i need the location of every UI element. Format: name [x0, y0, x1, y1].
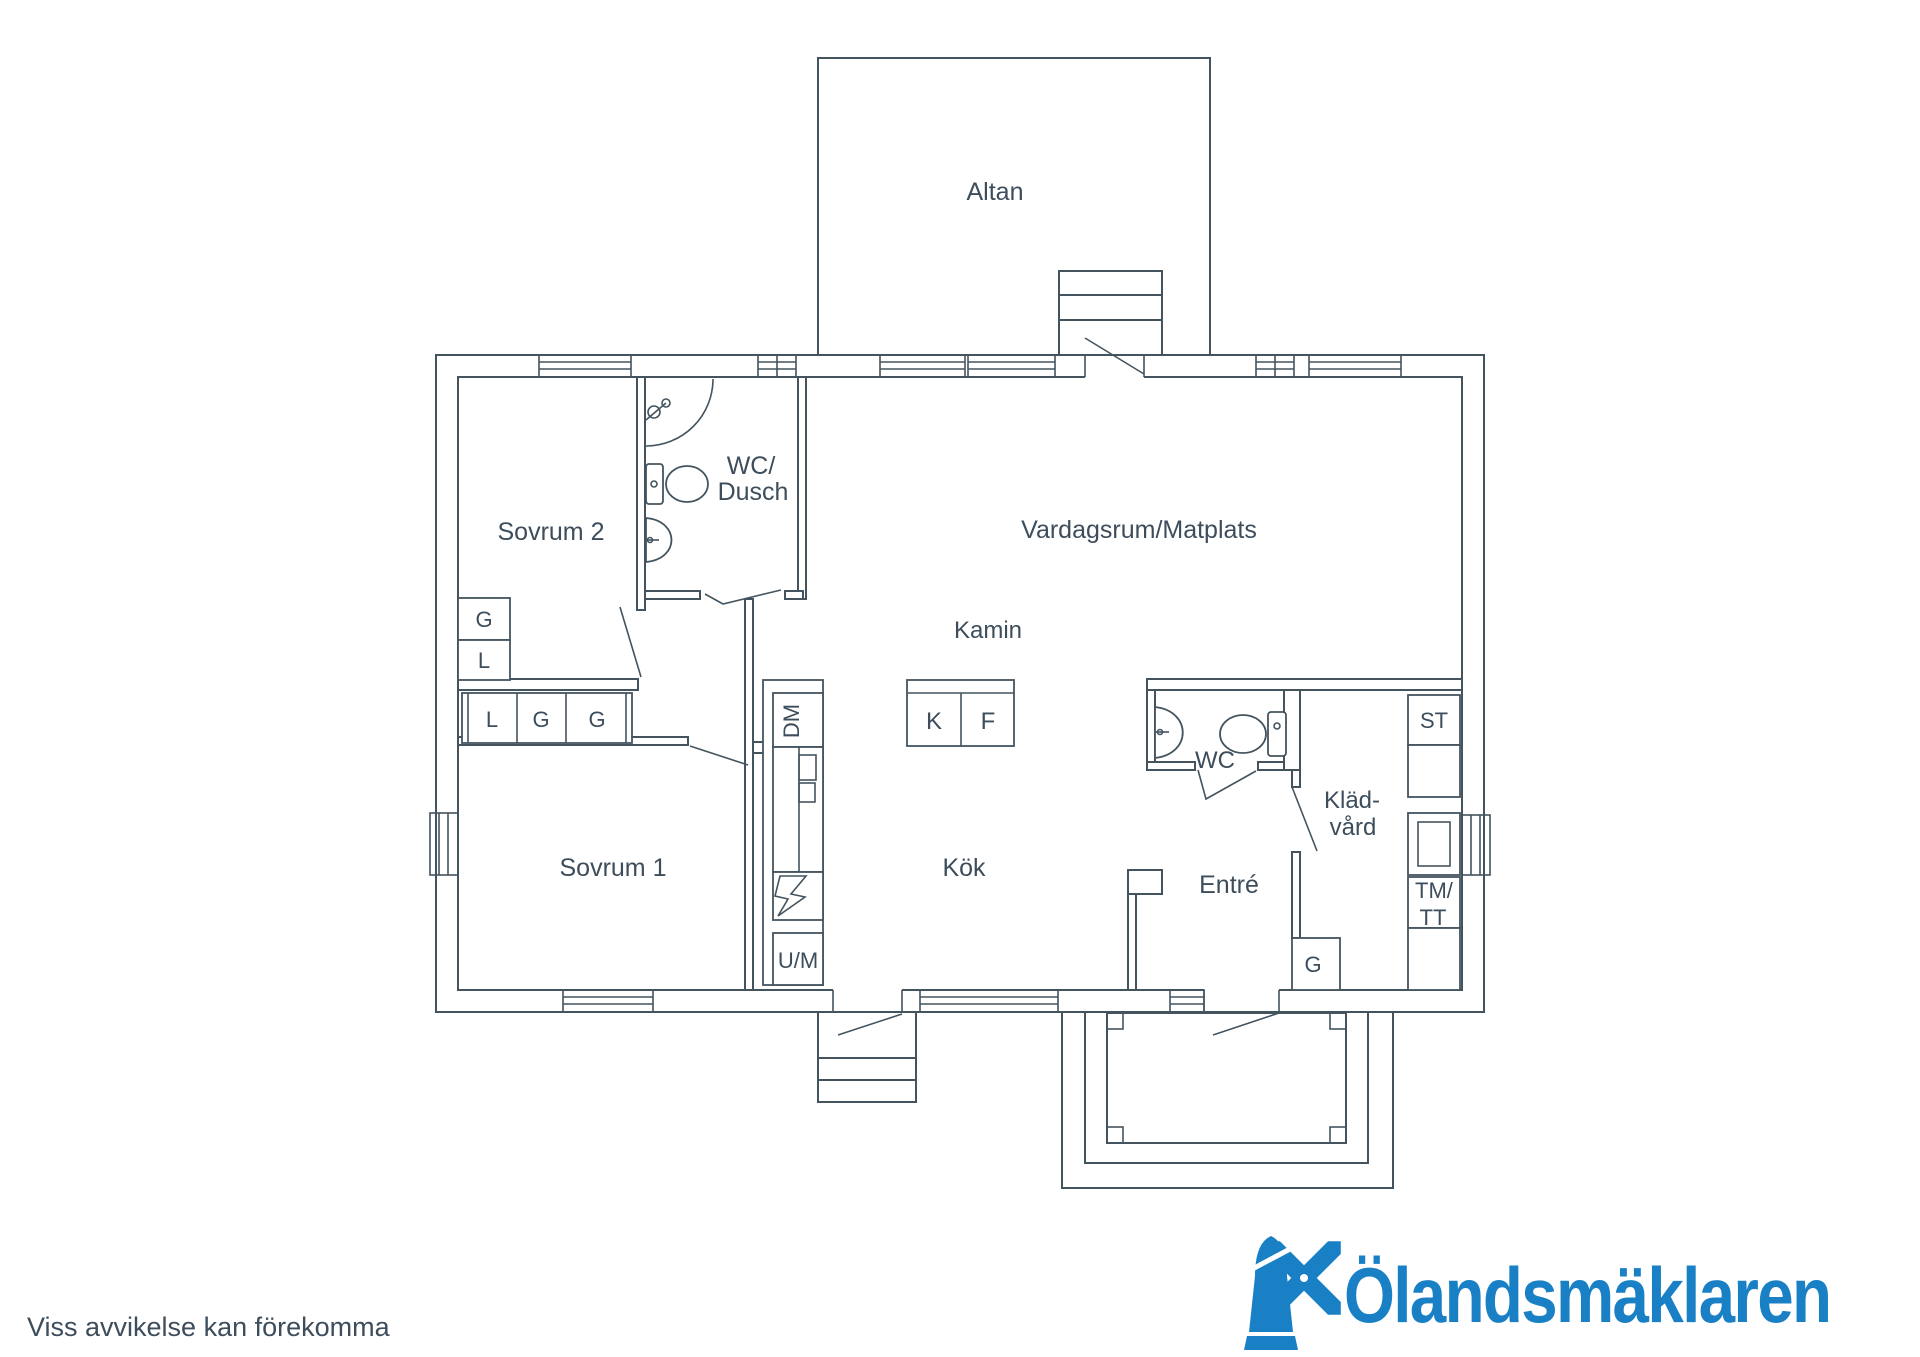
label-freezer-f: F [981, 708, 996, 735]
label-dm: DM [779, 704, 804, 738]
label-entre: Entré [1199, 871, 1259, 899]
label-tt: TT [1420, 905, 1447, 930]
label-sovrum-1: Sovrum 1 [560, 854, 667, 882]
label-kamin: Kamin [954, 617, 1022, 644]
disclaimer-text: Viss avvikelse kan förekomma [27, 1312, 390, 1343]
label-kladvard-line1: Kläd- [1324, 787, 1380, 814]
label-kok: Kök [942, 854, 986, 882]
porch-post [1330, 1013, 1346, 1029]
label-vardagsrum-matplats: Vardagsrum/Matplats [1021, 516, 1257, 544]
door-entre [1213, 1013, 1279, 1035]
door-kitchen-exit [838, 1014, 902, 1035]
label-g-closet-2: G [588, 707, 605, 732]
entry-porch [1062, 1012, 1393, 1188]
chimney [1128, 870, 1162, 894]
laundry-column [1408, 695, 1460, 990]
label-kladvard-line2: vård [1330, 814, 1377, 841]
label-fridge-k: K [926, 708, 942, 735]
label-sovrum-2: Sovrum 2 [498, 518, 605, 546]
fridge-freezer [907, 680, 1014, 746]
label-altan: Altan [967, 178, 1024, 206]
floorplan-drawing: AltanSovrum 2WC/DuschVardagsrum/Matplats… [0, 0, 1920, 1357]
label-wc: WC [1195, 747, 1235, 774]
label-g-sovrum2: G [475, 607, 492, 632]
brand-name: Ölandsmäklaren [1344, 1256, 1830, 1334]
label-g-closet-1: G [532, 707, 549, 732]
altan-outline [818, 58, 1210, 355]
windmill-icon [1242, 1228, 1342, 1356]
label-wc-dusch-line2: Dusch [718, 478, 789, 506]
altan-stairs [1059, 271, 1162, 355]
label-st: ST [1420, 708, 1448, 733]
label-l-sovrum2: L [478, 648, 490, 673]
porch-post [1330, 1127, 1346, 1143]
brand-logo: Ölandsmäklaren [1242, 1228, 1902, 1356]
porch-post [1107, 1127, 1123, 1143]
porch-post [1107, 1013, 1123, 1029]
label-wc-dusch-line1: WC/ [727, 452, 776, 480]
label-um: U/M [778, 948, 818, 973]
label-g-entre: G [1304, 952, 1321, 977]
floorplan-page: AltanSovrum 2WC/DuschVardagsrum/Matplats… [0, 0, 1920, 1357]
toilet-icon-wc-dusch [646, 464, 708, 504]
label-tm: TM/ [1415, 878, 1454, 903]
label-l-closet: L [486, 707, 498, 732]
